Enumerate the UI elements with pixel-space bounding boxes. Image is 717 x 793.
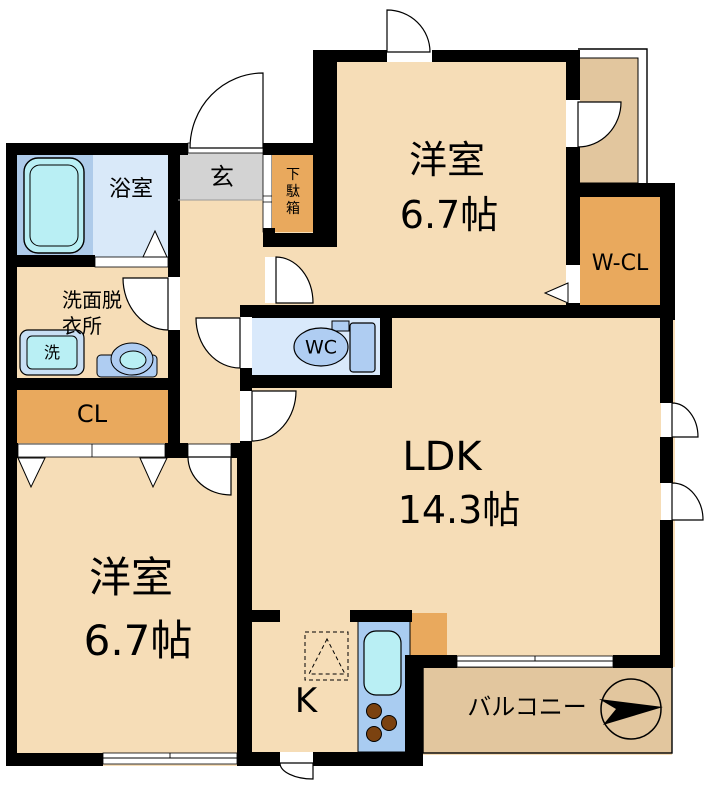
ldk-label: LDK	[402, 437, 481, 477]
stove-burner	[382, 716, 397, 731]
vanity-sink-bowl	[120, 351, 146, 369]
floorplan: 浴室 洗面脱 衣所 洗 玄 下駄箱 CL 洋室 6.7帖 W-CL WC LDK…	[0, 0, 717, 793]
toilet-lid	[332, 321, 349, 331]
washroom-label-line1: 洗面脱	[62, 290, 122, 310]
balcony-label: バルコニー	[467, 695, 587, 719]
toilet-tank	[350, 323, 375, 372]
shoe-cabinet-door	[263, 153, 272, 232]
washing-machine-label: 洗	[44, 345, 60, 361]
floorplan-canvas	[0, 0, 717, 793]
closet-label: CL	[77, 402, 107, 426]
bathtub	[24, 158, 84, 253]
shoe-cabinet-label: 下駄箱	[285, 167, 299, 218]
bedroom-north-size: 6.7帖	[400, 196, 498, 234]
kitchen-label: K	[295, 684, 317, 718]
ldk-size: 14.3帖	[398, 491, 521, 529]
bathroom-label: 浴室	[109, 179, 153, 201]
washroom-label-line2: 衣所	[62, 316, 102, 336]
toilet-label: WC	[305, 339, 337, 358]
bedroom-south-size: 6.7帖	[84, 620, 193, 662]
entrance-label: 玄	[210, 165, 234, 189]
stove-burner	[367, 727, 382, 742]
kitchen-cabinet	[410, 613, 447, 657]
bedroom-south-label: 洋室	[89, 557, 173, 599]
stove-burner	[367, 704, 382, 719]
kitchen-sink	[364, 631, 401, 695]
walk-in-closet-label: W-CL	[592, 253, 648, 275]
bedroom-north-label: 洋室	[409, 141, 485, 179]
